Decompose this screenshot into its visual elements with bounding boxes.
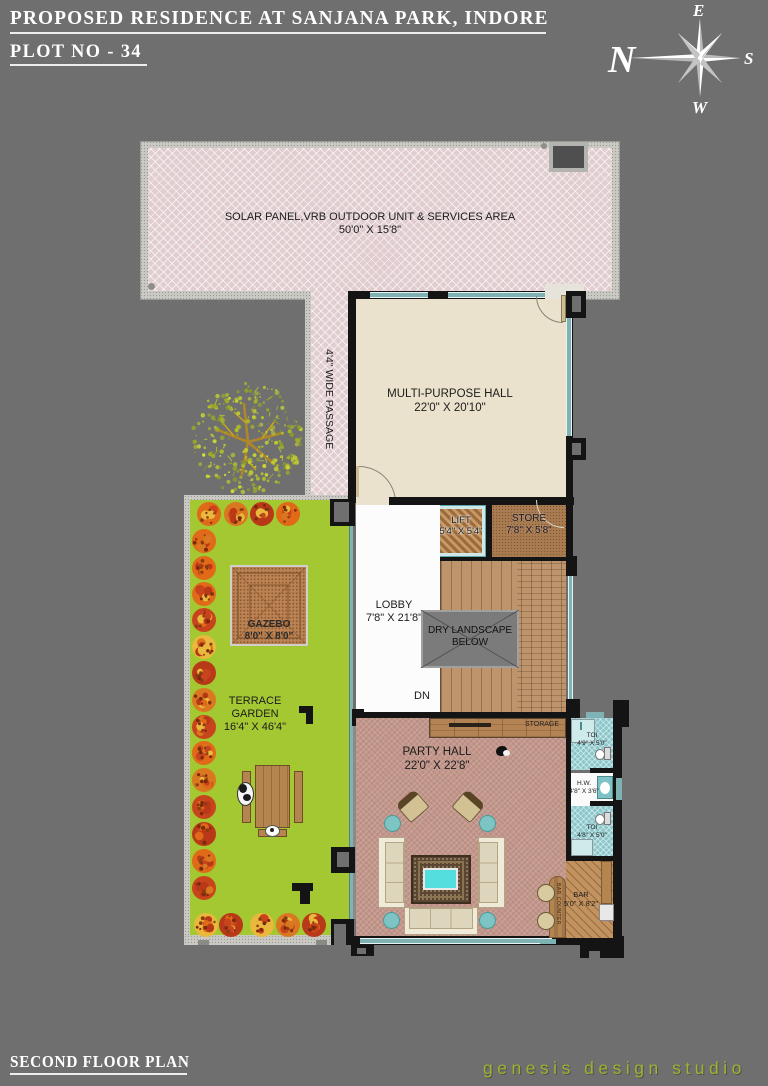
svg-text:W: W <box>692 98 709 117</box>
svg-text:N: N <box>607 39 637 81</box>
svg-text:E: E <box>692 1 704 20</box>
svg-text:S: S <box>744 49 753 68</box>
